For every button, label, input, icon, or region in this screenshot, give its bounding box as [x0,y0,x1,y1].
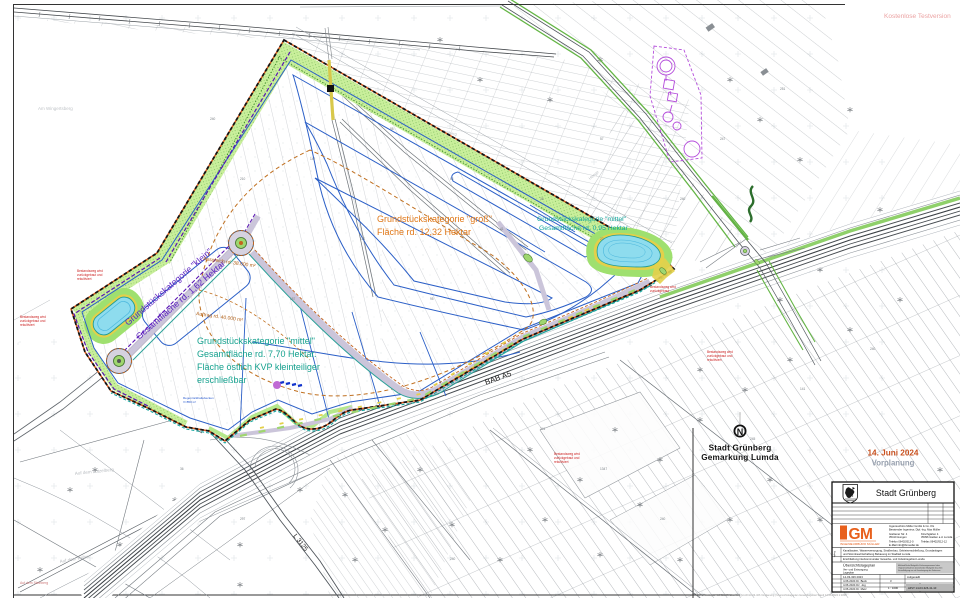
svg-text:Telefax 06402/512-12: Telefax 06402/512-12 [921,540,947,544]
svg-text:14. Juni 2024: 14. Juni 2024 [868,449,919,458]
svg-text:zurückgebaut: zurückgebaut [650,289,669,293]
svg-text:88: 88 [390,127,394,131]
svg-text:141: 141 [800,387,806,391]
svg-text:240: 240 [660,517,666,521]
svg-text:Erschließung interkommunaler G: Erschließung interkommunaler Gewerbe- un… [843,557,925,561]
svg-text:35410 Hungen: 35410 Hungen [889,535,907,539]
svg-text:und Strombewirtschaftung Bebau: und Strombewirtschaftung Bebauung im Sta… [843,552,911,556]
svg-text:4.06.2024 Dr. Metz: 4.06.2024 Dr. Metz [843,587,867,591]
svg-text:Vervielfältigung nur mit Geneh: Vervielfältigung nur mit Genehmigung des… [898,569,940,572]
svg-text:41: 41 [500,227,504,231]
svg-text:rekultiviert: rekultiviert [77,277,92,281]
svg-text:E-Mail info@ibmueller.de: E-Mail info@ibmueller.de [889,543,919,547]
svg-text:57: 57 [600,137,604,141]
svg-text:22: 22 [600,237,604,241]
svg-text:36: 36 [180,467,184,471]
svg-text:38: 38 [540,197,544,201]
svg-text:Kanalbauten, Wasserversorgung,: Kanalbauten, Wasserversorgung, Straßenba… [843,549,943,553]
svg-text:Stadt Grünberg: Stadt Grünberg [709,444,772,453]
svg-text:rekultiviert: rekultiviert [20,323,35,327]
svg-text:240: 240 [450,557,456,561]
svg-text:251: 251 [780,87,786,91]
svg-text:Aufgestellt: Aufgestellt [907,575,920,579]
svg-text:N: N [737,427,744,437]
svg-text:Lageplan: Lageplan [843,571,855,575]
svg-text:Ingenieurbüro Müller GmbH & Co: Ingenieurbüro Müller GmbH & Co. KG [889,524,934,528]
svg-text:Gemarkung Lumda: Gemarkung Lumda [701,453,779,462]
svg-text:142: 142 [310,157,316,161]
svg-text:245: 245 [750,437,756,441]
svg-text:GM: GM [849,526,873,543]
svg-text:240: 240 [870,347,876,351]
svg-text:erschließbar: erschließbar [197,375,247,385]
svg-text:Gesamtfläche rd. 0,95 Hektar: Gesamtfläche rd. 0,95 Hektar [539,225,629,232]
svg-text:Gesamtfläche rd. 7,70 Hektar.: Gesamtfläche rd. 7,70 Hektar. [197,349,317,359]
svg-text:Auf dem Steinberg: Auf dem Steinberg [20,581,48,585]
svg-text:ΔPLT 14-03-326-41-10: ΔPLT 14-03-326-41-10 [908,586,937,590]
svg-text:241: 241 [540,427,546,431]
svg-text:Fläche rd. 12,32 Hektar: Fläche rd. 12,32 Hektar [377,227,471,237]
svg-text:Übersichtslageplan: Übersichtslageplan [843,564,875,568]
svg-text:Kostenlose Testversion: Kostenlose Testversion [884,13,951,20]
svg-text:240: 240 [680,197,686,201]
svg-text:95: 95 [430,297,434,301]
svg-text:Grundstückskategorie "groß": Grundstückskategorie "groß" [377,214,492,224]
svg-text:Grundstückskategorie "mittel": Grundstückskategorie "mittel" [197,336,315,346]
svg-text:Fläche östlich KVP kleinteilig: Fläche östlich KVP kleinteiliger [197,362,320,372]
svg-text:Beratender Ingenieur, Dipl.-In: Beratender Ingenieur, Dipl.-Ing. Max Mül… [889,528,940,532]
svg-text:INGENIEURBÜRO MÜLLER: INGENIEURBÜRO MÜLLER [840,542,880,546]
svg-text:rekultiviert: rekultiviert [707,358,722,362]
svg-text:Stadt Grünberg: Stadt Grünberg [876,488,936,498]
svg-text:64: 64 [450,177,454,181]
svg-text:297: 297 [240,517,246,521]
svg-text:rekultiviert: rekultiviert [554,460,569,464]
svg-text:187: 187 [290,297,296,301]
svg-text:P:\Planung\14-03-326 GI-Lützel: P:\Planung\14-03-326 GI-Lützelberg\CAD\1… [700,593,847,597]
svg-text:Vorplanung: Vorplanung [872,459,915,468]
svg-text:240: 240 [210,117,216,121]
svg-text:V=850 m³: V=850 m³ [183,400,196,404]
svg-text:Telefon 06402/512-0: Telefon 06402/512-0 [889,540,914,544]
svg-text:247: 247 [720,137,726,141]
svg-text:Am Wingertsberg: Am Wingertsberg [38,106,73,111]
svg-text:35396 Gießen a.d. Lumda: 35396 Gießen a.d. Lumda [921,535,953,539]
svg-text:121: 121 [360,237,366,241]
svg-text:1 : 1000: 1 : 1000 [888,586,899,590]
svg-text:1347: 1347 [600,467,607,471]
svg-text:210: 210 [240,177,246,181]
svg-text:Grundstückskategorie "mittel": Grundstückskategorie "mittel" [537,216,627,223]
